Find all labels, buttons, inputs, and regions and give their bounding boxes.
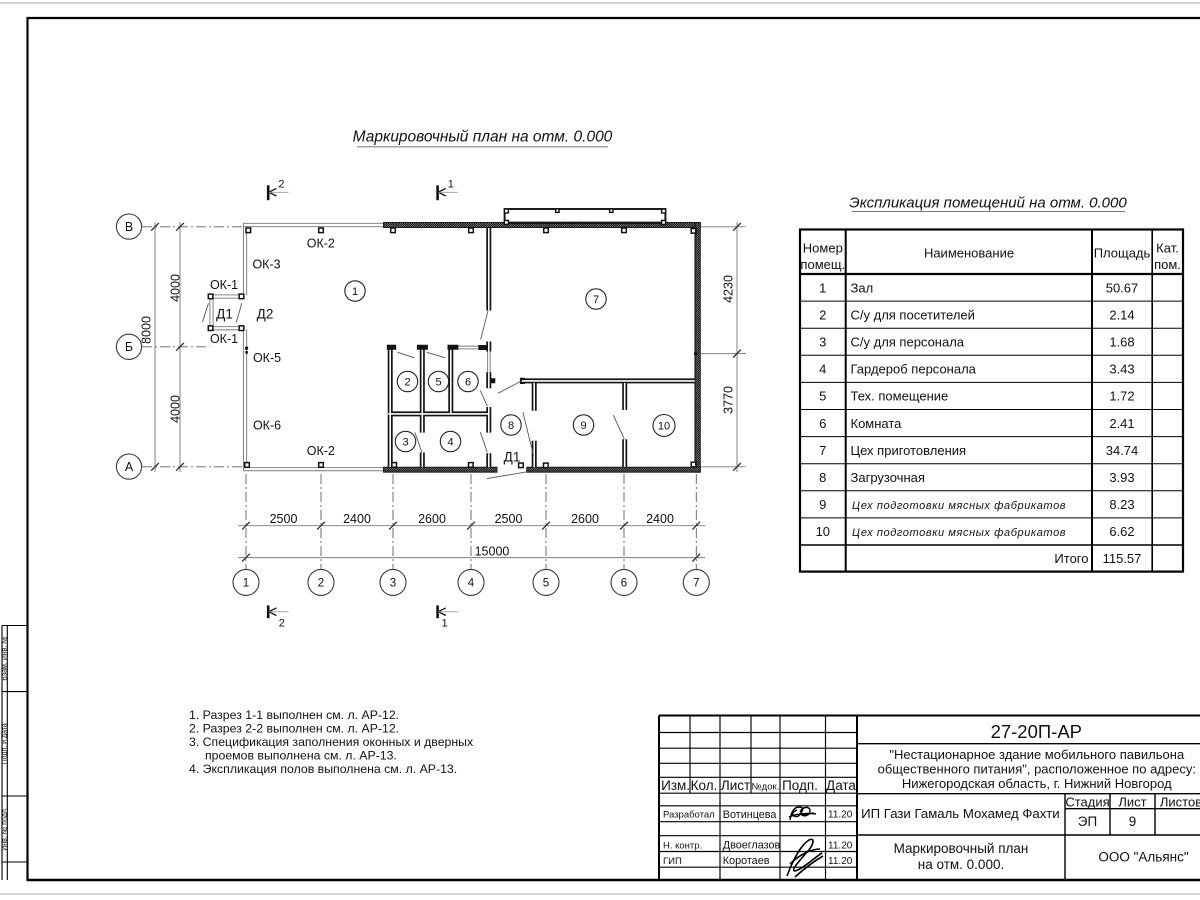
svg-text:Комната: Комната	[851, 416, 903, 431]
svg-text:3. Спецификация заполнения око: 3. Спецификация заполнения оконных и две…	[189, 735, 474, 749]
svg-text:Н. контр.: Н. контр.	[663, 840, 702, 851]
svg-text:А: А	[125, 460, 134, 474]
svg-text:11.20: 11.20	[828, 856, 853, 867]
svg-text:4000: 4000	[169, 395, 183, 423]
svg-text:Загрузочная: Загрузочная	[851, 470, 925, 485]
svg-text:ИП Гази Гамаль Мохамед Фахти: ИП Гази Гамаль Мохамед Фахти	[861, 806, 1059, 821]
svg-text:"Нестационарное здание мобильн: "Нестационарное здание мобильного павиль…	[889, 747, 1185, 762]
svg-text:7: 7	[693, 578, 699, 590]
svg-text:6: 6	[621, 578, 627, 590]
svg-text:3770: 3770	[722, 386, 736, 414]
svg-text:ОК-6: ОК-6	[253, 418, 281, 432]
svg-text:2: 2	[404, 376, 410, 388]
svg-text:Д1: Д1	[504, 450, 521, 465]
svg-text:11.20: 11.20	[828, 840, 853, 851]
svg-text:1: 1	[243, 578, 249, 590]
svg-text:Номер: Номер	[803, 241, 843, 256]
svg-text:С/у для посетителей: С/у для посетителей	[851, 307, 975, 322]
svg-text:Двоеглазов: Двоеглазов	[723, 840, 781, 852]
svg-text:Кат.: Кат.	[1156, 241, 1179, 256]
svg-text:Лист: Лист	[1118, 794, 1146, 809]
svg-text:помещ.: помещ.	[800, 257, 845, 272]
svg-text:2600: 2600	[418, 512, 446, 526]
svg-text:Площадь: Площадь	[1094, 246, 1151, 261]
svg-text:1: 1	[819, 280, 826, 295]
svg-text:Зал: Зал	[851, 280, 874, 295]
svg-text:Кол.: Кол.	[691, 778, 718, 793]
svg-text:11.20: 11.20	[828, 810, 853, 821]
svg-text:7: 7	[819, 443, 826, 458]
svg-text:3: 3	[819, 335, 826, 350]
svg-text:2.41: 2.41	[1109, 416, 1134, 431]
svg-text:1. Разрез 1-1 выполнен см. л.: 1. Разрез 1-1 выполнен см. л. АР-12.	[189, 708, 399, 722]
svg-text:Изм.: Изм.	[661, 778, 690, 793]
svg-text:Цех подготовки мясных фабрикат: Цех подготовки мясных фабрикатов	[852, 527, 1066, 539]
svg-text:С/у для персонала: С/у для персонала	[851, 335, 965, 350]
svg-text:2600: 2600	[571, 512, 599, 526]
svg-text:4: 4	[468, 578, 475, 590]
svg-text:Цех приготовления: Цех приготовления	[851, 443, 967, 458]
svg-text:Маркировочный план на отм. 0.0: Маркировочный план на отм. 0.000	[353, 129, 613, 146]
svg-text:Наименование: Наименование	[924, 246, 1014, 261]
svg-text:Инв. № подл.: Инв. № подл.	[2, 807, 9, 851]
svg-text:ОК-5: ОК-5	[253, 351, 281, 365]
svg-text:8: 8	[819, 470, 826, 485]
svg-text:Коротаев: Коротаев	[723, 855, 770, 867]
svg-text:6.62: 6.62	[1109, 524, 1134, 539]
svg-text:10: 10	[816, 524, 830, 539]
svg-text:пом.: пом.	[1154, 257, 1181, 272]
svg-text:6: 6	[465, 376, 471, 388]
svg-text:Стадия: Стадия	[1065, 794, 1109, 809]
svg-text:5: 5	[543, 578, 549, 590]
svg-text:2.14: 2.14	[1109, 307, 1134, 322]
svg-text:Итого: Итого	[1054, 551, 1088, 566]
svg-text:3.43: 3.43	[1109, 362, 1134, 377]
svg-text:34.74: 34.74	[1106, 443, 1139, 458]
svg-text:Цех подготовки мясных фабрикат: Цех подготовки мясных фабрикатов	[852, 500, 1066, 512]
svg-text:№док.: №док.	[751, 782, 779, 793]
svg-text:15000: 15000	[475, 544, 510, 558]
svg-text:9: 9	[819, 497, 826, 512]
svg-text:9: 9	[1129, 814, 1137, 829]
svg-text:10: 10	[658, 420, 670, 432]
svg-text:2: 2	[819, 307, 826, 322]
svg-text:Экспликация помещений на отм.: Экспликация помещений на отм. 0.000	[849, 195, 1127, 212]
svg-text:1: 1	[441, 618, 447, 630]
svg-text:3.93: 3.93	[1109, 470, 1134, 485]
svg-text:3: 3	[390, 578, 396, 590]
svg-text:общественного питания", распол: общественного питания", расположенное по…	[878, 761, 1196, 776]
svg-text:7: 7	[593, 294, 599, 306]
svg-text:ГИП: ГИП	[663, 856, 682, 867]
svg-text:8: 8	[508, 420, 514, 432]
svg-text:5: 5	[819, 389, 826, 404]
svg-text:2400: 2400	[646, 512, 674, 526]
svg-text:Д2: Д2	[257, 306, 274, 321]
svg-text:2: 2	[318, 578, 324, 590]
svg-text:на отм. 0.000.: на отм. 0.000.	[918, 857, 1004, 872]
svg-text:ОК-3: ОК-3	[252, 257, 280, 271]
svg-text:2: 2	[279, 618, 285, 630]
svg-text:Подп.: Подп.	[782, 778, 818, 793]
svg-text:ОК-1: ОК-1	[210, 278, 238, 292]
svg-text:Маркировочный план: Маркировочный план	[894, 841, 1029, 856]
svg-text:Дата: Дата	[826, 778, 856, 793]
svg-text:проемов выполнена см. л. АР-13: проемов выполнена см. л. АР-13.	[205, 749, 397, 763]
svg-text:8.23: 8.23	[1109, 497, 1134, 512]
svg-text:ОК-2: ОК-2	[307, 444, 335, 458]
svg-text:ОК-1: ОК-1	[210, 332, 238, 346]
svg-text:ОК-2: ОК-2	[307, 237, 335, 251]
svg-text:2400: 2400	[343, 512, 371, 526]
svg-text:4. Экспликация полов выполнена: 4. Экспликация полов выполнена см. л. АР…	[189, 762, 457, 776]
svg-text:115.57: 115.57	[1103, 551, 1142, 566]
svg-text:Тех. помещение: Тех. помещение	[851, 389, 949, 404]
svg-text:Подп. и дата: Подп. и дата	[2, 723, 9, 764]
svg-text:Листов: Листов	[1160, 794, 1200, 809]
svg-text:2500: 2500	[270, 512, 298, 526]
svg-text:2. Разрез 2-2 выполнен см. л.: 2. Разрез 2-2 выполнен см. л. АР-12.	[189, 722, 399, 736]
svg-text:Вотинцева: Вотинцева	[723, 809, 777, 821]
svg-text:4000: 4000	[169, 274, 183, 302]
svg-text:Нижегородская область, г. Нижн: Нижегородская область, г. Нижний Новгоро…	[902, 776, 1172, 791]
svg-text:4: 4	[447, 436, 453, 448]
svg-text:В: В	[125, 220, 133, 234]
svg-text:2500: 2500	[495, 512, 523, 526]
svg-text:50.67: 50.67	[1106, 280, 1139, 295]
svg-text:6: 6	[819, 416, 826, 431]
svg-text:4: 4	[819, 362, 826, 377]
svg-text:1.68: 1.68	[1109, 335, 1134, 350]
svg-text:1: 1	[352, 286, 358, 298]
svg-text:Б: Б	[125, 340, 133, 354]
svg-text:Разработал: Разработал	[663, 810, 715, 821]
svg-text:5: 5	[435, 376, 441, 388]
svg-text:9: 9	[580, 420, 586, 432]
svg-text:Взам. Инв. №: Взам. Инв. №	[2, 636, 9, 681]
svg-text:8000: 8000	[140, 316, 154, 344]
svg-text:1.72: 1.72	[1109, 389, 1134, 404]
svg-text:27-20П-АР: 27-20П-АР	[991, 721, 1082, 742]
svg-text:ЭП: ЭП	[1078, 814, 1097, 829]
svg-text:Д1: Д1	[216, 306, 233, 321]
svg-text:ООО "Альянс": ООО "Альянс"	[1098, 849, 1188, 864]
svg-text:4230: 4230	[722, 275, 736, 303]
svg-text:Лист: Лист	[721, 778, 750, 793]
svg-text:2: 2	[278, 178, 284, 190]
svg-text:Гардероб персонала: Гардероб персонала	[851, 362, 977, 377]
svg-text:1: 1	[448, 178, 454, 190]
svg-text:3: 3	[402, 436, 408, 448]
